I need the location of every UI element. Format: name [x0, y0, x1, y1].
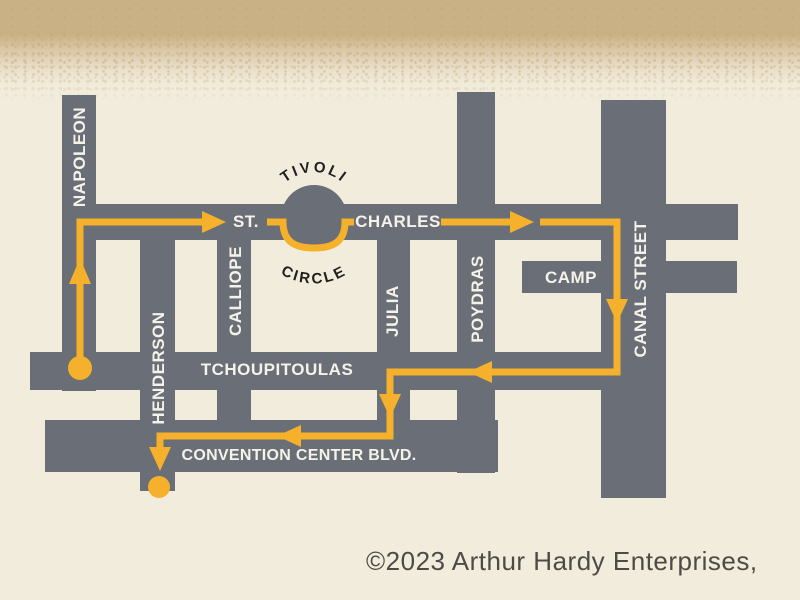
copyright-text: ©2023 Arthur Hardy Enterprises,	[366, 546, 800, 577]
street-convention-center-blvd	[45, 420, 498, 472]
label-st: ST.	[233, 212, 259, 231]
label-tivoli-text: TIVOLI	[278, 159, 351, 186]
label-circle-text: CIRCLE	[278, 262, 349, 287]
label-convention-center-blvd: CONVENTION CENTER BLVD.	[181, 447, 416, 464]
label-henderson: HENDERSON	[149, 311, 168, 424]
label-tivoli: TIVOLI	[278, 159, 351, 186]
route-end-dot	[148, 476, 170, 498]
map-canvas: ST. CHARLES CAMP TCHOUPITOULAS CONVENTIO…	[0, 0, 800, 600]
label-napoleon: NAPOLEON	[70, 107, 89, 207]
label-canal-street: CANAL STREET	[631, 220, 650, 357]
parade-route-map: ST. CHARLES CAMP TCHOUPITOULAS CONVENTIO…	[0, 0, 800, 600]
label-julia: JULIA	[383, 285, 402, 337]
route-start-dot	[68, 356, 92, 380]
label-circle: CIRCLE	[278, 262, 349, 287]
label-calliope: CALLIOPE	[226, 246, 245, 336]
label-charles: CHARLES	[355, 212, 441, 231]
label-tchoupitoulas: TCHOUPITOULAS	[201, 360, 354, 379]
label-poydras: POYDRAS	[468, 255, 487, 343]
label-camp: CAMP	[545, 268, 597, 287]
